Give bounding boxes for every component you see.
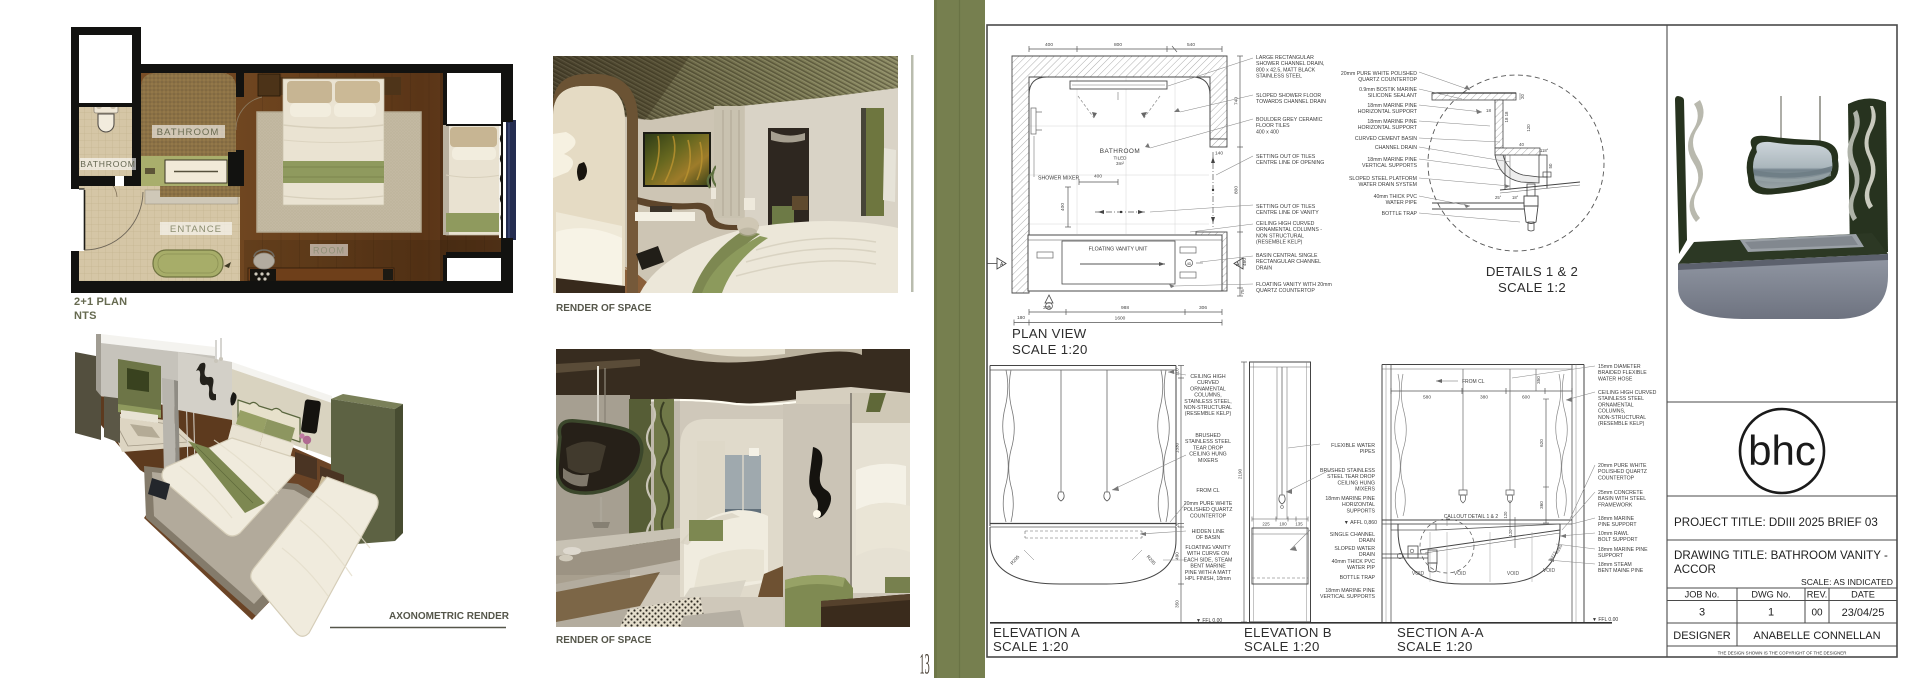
svg-text:bhc: bhc bbox=[1748, 427, 1816, 474]
svg-text:VOID: VOID bbox=[1507, 571, 1520, 577]
svg-text:18: 18 bbox=[1486, 108, 1491, 113]
svg-text:FLOATING VANITY UNIT: FLOATING VANITY UNIT bbox=[1089, 247, 1149, 253]
svg-text:SCALE 1:20: SCALE 1:20 bbox=[993, 639, 1069, 654]
svg-text:18mm MARINEPINE SUPPORT: 18mm MARINEPINE SUPPORT bbox=[1598, 516, 1637, 528]
svg-text:DESIGNER: DESIGNER bbox=[1673, 630, 1731, 642]
svg-text:18mm MARINE PINEHORIZONTAL SUP: 18mm MARINE PINEHORIZONTAL SUPPORT bbox=[1358, 103, 1418, 115]
svg-text:800: 800 bbox=[1234, 186, 1240, 194]
svg-text:1: 1 bbox=[1768, 607, 1774, 619]
svg-text:490: 490 bbox=[1175, 552, 1180, 560]
svg-text:BATHROOM: BATHROOM bbox=[1100, 148, 1140, 155]
svg-text:AXONOMETRIC RENDER: AXONOMETRIC RENDER bbox=[389, 611, 510, 622]
svg-text:DATE: DATE bbox=[1851, 590, 1875, 600]
svg-text:306: 306 bbox=[1199, 305, 1207, 311]
svg-text:3m²: 3m² bbox=[1116, 161, 1124, 166]
svg-text:400: 400 bbox=[1045, 42, 1053, 48]
svg-text:1600: 1600 bbox=[1115, 316, 1126, 322]
svg-text:JOB No.: JOB No. bbox=[1685, 590, 1720, 600]
svg-text:ROOM: ROOM bbox=[313, 246, 345, 256]
svg-text:BATHROOM: BATHROOM bbox=[80, 159, 135, 169]
svg-text:988: 988 bbox=[1121, 305, 1129, 311]
svg-text:18°: 18° bbox=[1512, 195, 1519, 200]
svg-text:DRAWING TITLE: BATHROOM VANITY: DRAWING TITLE: BATHROOM VANITY - bbox=[1674, 549, 1888, 562]
svg-text:3: 3 bbox=[1699, 607, 1705, 619]
svg-text:600: 600 bbox=[1522, 395, 1530, 401]
svg-text:20mm PURE WHITEPOLISHED QUARTZ: 20mm PURE WHITEPOLISHED QUARTZCOUNTERTOP bbox=[1184, 501, 1233, 519]
svg-text:180: 180 bbox=[1017, 315, 1025, 321]
svg-text:18mm MARINE PINEHORIZONTAL SUP: 18mm MARINE PINEHORIZONTAL SUPPORT bbox=[1358, 119, 1418, 131]
svg-text:18 18: 18 18 bbox=[1504, 111, 1509, 123]
svg-text:ENTANCE: ENTANCE bbox=[170, 224, 222, 235]
svg-text:VOID: VOID bbox=[1412, 571, 1425, 577]
svg-text:120: 120 bbox=[1508, 529, 1513, 537]
svg-text:CALLOUT DETAIL 1 & 2: CALLOUT DETAIL 1 & 2 bbox=[1444, 514, 1499, 520]
svg-text:2190: 2190 bbox=[1238, 468, 1243, 479]
svg-text:120: 120 bbox=[1503, 511, 1508, 519]
svg-text:360: 360 bbox=[1539, 501, 1544, 509]
svg-text:SCALE: AS INDICATED: SCALE: AS INDICATED bbox=[1801, 577, 1893, 587]
svg-text:20: 20 bbox=[1175, 522, 1180, 527]
svg-text:110: 110 bbox=[1175, 368, 1180, 376]
svg-text:VOID: VOID bbox=[1543, 568, 1556, 574]
svg-text:BOTTLE TRAP: BOTTLE TRAP bbox=[1382, 211, 1418, 217]
svg-text:SETTING OUT OF TILESCENTRE LIN: SETTING OUT OF TILESCENTRE LINE OF OPENI… bbox=[1256, 154, 1324, 166]
svg-text:100: 100 bbox=[1279, 522, 1287, 527]
svg-text:FROM CL: FROM CL bbox=[1196, 488, 1219, 494]
svg-text:140: 140 bbox=[1215, 151, 1223, 157]
svg-text:SHOWER MIXER: SHOWER MIXER bbox=[1038, 176, 1079, 182]
svg-text:ELEVATION B: ELEVATION B bbox=[1244, 625, 1332, 640]
svg-text:540: 540 bbox=[1187, 42, 1195, 48]
svg-text:BATHROOM: BATHROOM bbox=[157, 127, 220, 138]
svg-text:0.9mm BOSTIK MARINESILICONE SE: 0.9mm BOSTIK MARINESILICONE SEALANT bbox=[1359, 87, 1418, 99]
svg-text:DWG No.: DWG No. bbox=[1751, 590, 1790, 600]
svg-text:PROJECT TITLE: DDIII 2025 BRIE: PROJECT TITLE: DDIII 2025 BRIEF 03 bbox=[1674, 516, 1878, 529]
svg-text:75: 75 bbox=[1240, 289, 1246, 295]
svg-text:13: 13 bbox=[920, 647, 930, 678]
svg-text:SCALE 1:20: SCALE 1:20 bbox=[1397, 639, 1473, 654]
svg-text:CHANNEL DRAIN: CHANNEL DRAIN bbox=[1375, 145, 1417, 151]
svg-text:18mm MARINE PINEVERTICAL SUPPO: 18mm MARINE PINEVERTICAL SUPPORTS bbox=[1320, 588, 1376, 600]
svg-text:400: 400 bbox=[1060, 203, 1066, 211]
svg-text:18mm MARINE PINEVERTICAL SUPPO: 18mm MARINE PINEVERTICAL SUPPORTS bbox=[1362, 157, 1418, 169]
svg-text:135: 135 bbox=[1295, 522, 1303, 527]
svg-text:118°: 118° bbox=[1540, 148, 1549, 153]
svg-text:PLAN VIEW: PLAN VIEW bbox=[1012, 326, 1087, 341]
svg-text:00: 00 bbox=[1811, 608, 1823, 619]
svg-text:350: 350 bbox=[1175, 600, 1180, 608]
svg-text:RENDER OF SPACE: RENDER OF SPACE bbox=[556, 303, 652, 314]
svg-text:ANABELLE CONNELLAN: ANABELLE CONNELLAN bbox=[1753, 630, 1880, 642]
svg-text:620: 620 bbox=[1539, 439, 1544, 447]
svg-text:1330: 1330 bbox=[1175, 442, 1180, 453]
svg-text:SLOPED SHOWER FLOORTOWARDS CHA: SLOPED SHOWER FLOORTOWARDS CHANNEL DRAIN bbox=[1256, 93, 1326, 105]
svg-text:SLOPED STEEL PLATFORMWATER DRA: SLOPED STEEL PLATFORMWATER DRAIN SYSTEM bbox=[1349, 176, 1417, 188]
svg-text:4D: 4D bbox=[1187, 262, 1192, 266]
svg-text:FROM CL: FROM CL bbox=[1462, 379, 1485, 385]
svg-text:120: 120 bbox=[1526, 124, 1531, 132]
svg-text:THE DESIGN SHOWN IS THE COPYRI: THE DESIGN SHOWN IS THE COPYRIGHT OF THE… bbox=[1718, 651, 1847, 656]
svg-text:VOID: VOID bbox=[1454, 571, 1467, 577]
svg-text:580: 580 bbox=[1423, 395, 1431, 401]
svg-text:23/04/25: 23/04/25 bbox=[1842, 607, 1885, 619]
svg-text:BOTTLE TRAP: BOTTLE TRAP bbox=[1340, 575, 1376, 581]
svg-text:2+1 PLAN: 2+1 PLAN bbox=[74, 296, 127, 308]
svg-text:FLOATING VANITYWITH CURVE ONEA: FLOATING VANITYWITH CURVE ONEACH SIDE, S… bbox=[1184, 545, 1233, 582]
svg-text:SCALE 1:20: SCALE 1:20 bbox=[1244, 639, 1320, 654]
svg-text:▼ AFFL 0,860: ▼ AFFL 0,860 bbox=[1344, 520, 1377, 526]
svg-text:25°: 25° bbox=[1495, 195, 1502, 200]
svg-text:CURVED CEMENT BASIN: CURVED CEMENT BASIN bbox=[1355, 136, 1417, 142]
svg-text:SCALE 1:20: SCALE 1:20 bbox=[1012, 342, 1088, 357]
svg-text:800: 800 bbox=[1114, 42, 1122, 48]
svg-text:400: 400 bbox=[1094, 174, 1102, 180]
svg-text:20: 20 bbox=[1520, 94, 1525, 99]
svg-text:HIDDEN LINEOF BASIN: HIDDEN LINEOF BASIN bbox=[1192, 529, 1225, 541]
svg-text:ACCOR: ACCOR bbox=[1674, 563, 1716, 576]
svg-text:740: 740 bbox=[1234, 97, 1240, 105]
svg-text:306: 306 bbox=[1043, 305, 1051, 311]
svg-text:350: 350 bbox=[1536, 376, 1541, 384]
svg-text:225: 225 bbox=[1262, 522, 1270, 527]
svg-text:DETAILS 1 & 2: DETAILS 1 & 2 bbox=[1486, 264, 1578, 279]
svg-text:SECTION A-A: SECTION A-A bbox=[1397, 625, 1484, 640]
svg-text:ELEVATION A: ELEVATION A bbox=[993, 625, 1080, 640]
svg-text:SCALE 1:2: SCALE 1:2 bbox=[1498, 280, 1566, 295]
svg-text:40: 40 bbox=[1519, 142, 1524, 147]
svg-text:RENDER OF SPACE: RENDER OF SPACE bbox=[556, 635, 652, 646]
svg-text:NTS: NTS bbox=[74, 310, 97, 322]
svg-text:TILED: TILED bbox=[1113, 156, 1127, 161]
svg-text:460: 460 bbox=[1242, 258, 1248, 266]
svg-text:50: 50 bbox=[1548, 163, 1553, 168]
svg-text:REV.: REV. bbox=[1807, 590, 1828, 600]
svg-text:SETTING OUT OF TILESCENTRE LIN: SETTING OUT OF TILESCENTRE LINE OF VANIT… bbox=[1256, 204, 1319, 216]
svg-text:380: 380 bbox=[1480, 395, 1488, 401]
